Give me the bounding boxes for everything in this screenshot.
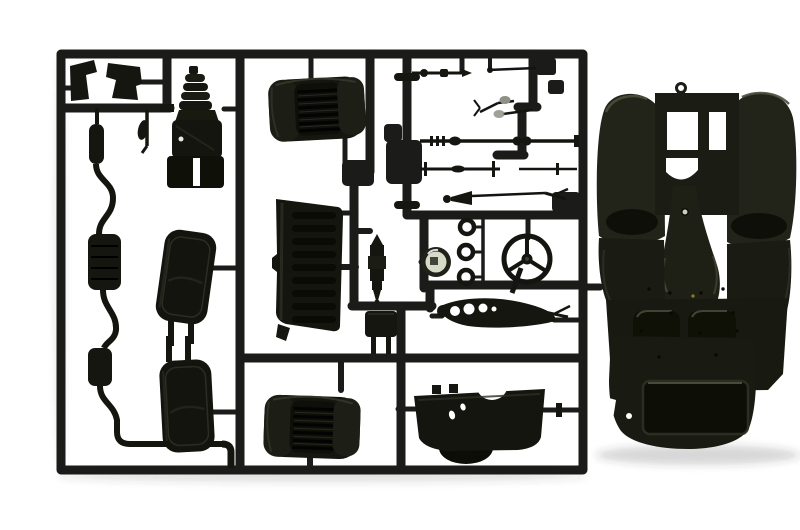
engine-attach bbox=[160, 104, 174, 112]
bulkhead-slats bbox=[292, 212, 336, 323]
junction-block bbox=[384, 124, 402, 142]
engine-slot bbox=[193, 158, 200, 186]
frame-window bbox=[667, 112, 698, 150]
door-shape bbox=[159, 359, 216, 454]
shaft-rib bbox=[436, 136, 439, 146]
battery-body bbox=[365, 311, 397, 337]
axle-tick bbox=[492, 161, 495, 177]
shaft-rib bbox=[430, 136, 433, 146]
rear-hole bbox=[626, 413, 632, 419]
seat-shape bbox=[263, 394, 361, 459]
axle-tick bbox=[556, 163, 559, 175]
engine-bellows-disc bbox=[183, 83, 208, 91]
junction-block bbox=[548, 80, 564, 94]
manifold-port bbox=[492, 307, 497, 312]
shaft-flange bbox=[574, 135, 579, 147]
cowl-gate-collar bbox=[556, 403, 562, 417]
door-prong bbox=[166, 336, 172, 362]
cross-tick bbox=[394, 73, 420, 81]
shock-segment bbox=[372, 281, 382, 290]
junction-block bbox=[342, 160, 374, 186]
engine-bellows-disc bbox=[179, 101, 212, 110]
shaft-rib bbox=[442, 136, 445, 146]
bulkhead-panel: Ribbed bulkhead panel bbox=[272, 199, 343, 341]
manifold-port bbox=[464, 304, 475, 315]
frame-window bbox=[709, 112, 726, 150]
shock-segment bbox=[370, 269, 384, 281]
spine-hole bbox=[682, 209, 688, 215]
fender-shadow bbox=[606, 209, 658, 235]
battery-prong bbox=[386, 337, 391, 354]
bucket-seat-top: Bucket seat (upper) bbox=[267, 76, 366, 143]
bulkhead-side-highlight bbox=[281, 203, 282, 320]
shaft-collar bbox=[513, 137, 522, 146]
axle-bulge bbox=[451, 166, 465, 173]
pipe-ball bbox=[443, 195, 451, 203]
rod-ball bbox=[487, 67, 493, 73]
muffler-rear bbox=[88, 348, 112, 386]
shaft-bulge bbox=[449, 137, 461, 146]
metal-bushing bbox=[500, 96, 511, 104]
fender-shadow bbox=[731, 213, 787, 239]
seat-shape bbox=[267, 76, 366, 143]
paint-speck bbox=[691, 294, 694, 297]
manifold-port bbox=[450, 306, 460, 316]
exhaust-cylinder bbox=[89, 124, 104, 164]
muffler-front bbox=[88, 234, 121, 290]
junction-block bbox=[536, 58, 556, 75]
engine-nub bbox=[189, 66, 198, 74]
engine-bellows-disc bbox=[185, 74, 205, 82]
wheel-hub-dot bbox=[525, 257, 529, 261]
lens-core bbox=[430, 257, 438, 265]
bucket-seat-bottom: Bucket seat (lower) bbox=[263, 394, 361, 459]
metal-bushing bbox=[494, 110, 505, 118]
cross-tick bbox=[394, 201, 420, 209]
rod-collar bbox=[440, 69, 448, 77]
manifold-end bbox=[437, 305, 449, 317]
photo-canvas: Sprue frame and runners bbox=[0, 0, 800, 530]
shock-segment bbox=[368, 256, 386, 269]
model-kit-sprue-photo: Sprue frame and runners bbox=[0, 0, 800, 530]
cowl-tab bbox=[432, 385, 441, 394]
engine-bellows-disc bbox=[181, 92, 210, 100]
junction-block bbox=[386, 140, 422, 184]
rod-ball bbox=[420, 69, 428, 77]
cowl-tab bbox=[449, 384, 458, 393]
shaft-collar bbox=[523, 137, 532, 146]
axle-tick bbox=[424, 162, 427, 176]
door-prong bbox=[185, 336, 191, 362]
clear-lens: Clear lens insert bbox=[421, 247, 451, 277]
shock-segment bbox=[370, 245, 384, 256]
battery-prong bbox=[371, 337, 376, 354]
manifold-port bbox=[479, 304, 488, 313]
engine-hole bbox=[179, 137, 184, 142]
rear-recess bbox=[643, 381, 748, 434]
